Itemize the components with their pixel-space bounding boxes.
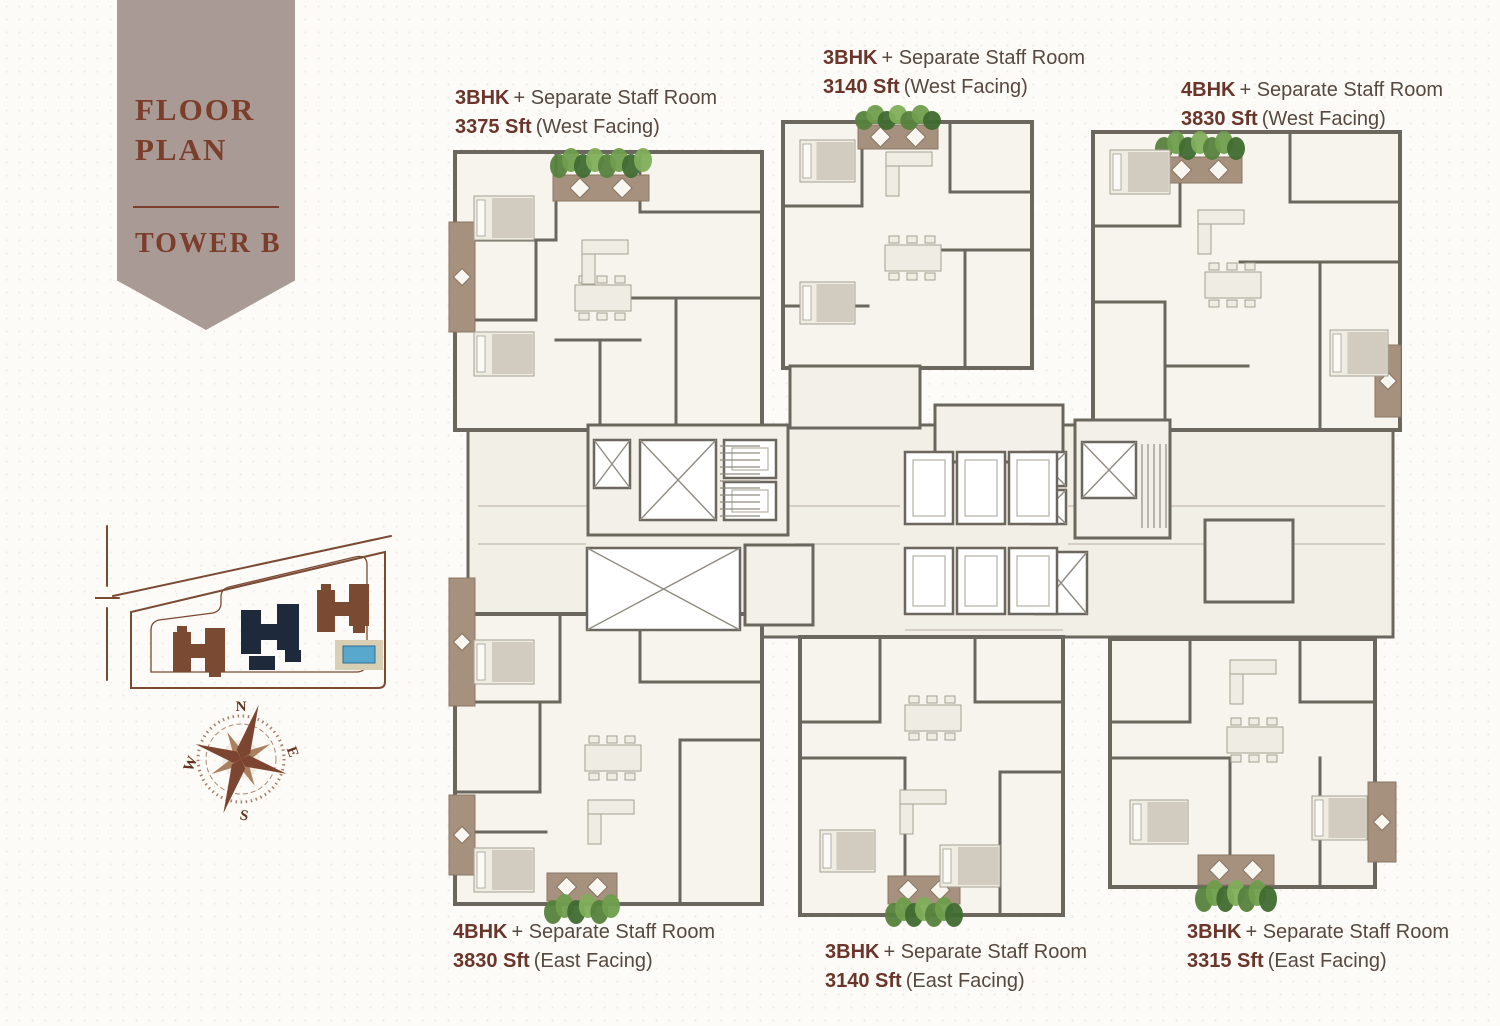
unit-label-bottom-right: 3BHK+ Separate Staff Room 3315 Sft(East … [1187,918,1449,976]
unit-suffix: + Separate Staff Room [513,87,717,109]
unit-area: 3830 Sft [453,950,530,972]
unit-area: 3830 Sft [1181,108,1258,130]
site-building-left [173,626,225,677]
unit-area: 3315 Sft [1187,950,1264,972]
site-key-map [95,512,395,697]
unit-label-bottom-middle: 3BHK+ Separate Staff Room 3140 Sft(East … [825,938,1087,996]
floor-plan-page: FLOOR PLAN TOWER B [0,0,1500,1026]
unit-area: 3140 Sft [825,970,902,992]
unit-facing: (West Facing) [536,116,660,138]
unit-bhk: 3BHK [825,941,879,963]
unit-facing: (West Facing) [904,76,1028,98]
unit-suffix: + Separate Staff Room [881,47,1085,69]
unit-bhk: 3BHK [455,87,509,109]
compass-icon: N E S W [183,696,301,822]
unit-area: 3140 Sft [823,76,900,98]
compass-north-label: N [236,699,247,715]
unit-area: 3375 Sft [455,116,532,138]
compass-east-label: E [283,745,301,760]
unit-label-bottom-left: 4BHK+ Separate Staff Room 3830 Sft(East … [453,918,715,976]
unit-facing: (East Facing) [906,970,1025,992]
unit-facing: (East Facing) [1268,950,1387,972]
unit-bhk: 4BHK [453,921,507,943]
unit-bhk: 3BHK [1187,921,1241,943]
unit-bhk: 3BHK [823,47,877,69]
unit-suffix: + Separate Staff Room [1245,921,1449,943]
unit-suffix: + Separate Staff Room [1239,79,1443,101]
unit-suffix: + Separate Staff Room [511,921,715,943]
unit-facing: (West Facing) [1262,108,1386,130]
site-building-tower-b-highlight [241,604,301,670]
unit-label-top-middle: 3BHK+ Separate Staff Room 3140 Sft(West … [823,44,1085,102]
compass-south-label: S [239,807,250,822]
unit-suffix: + Separate Staff Room [883,941,1087,963]
unit-facing: (East Facing) [534,950,653,972]
site-building-right [317,584,369,633]
unit-label-top-left: 3BHK+ Separate Staff Room 3375 Sft(West … [455,84,717,142]
unit-label-top-right: 4BHK+ Separate Staff Room 3830 Sft(West … [1181,76,1443,134]
site-pool [335,640,383,670]
unit-bhk: 4BHK [1181,79,1235,101]
